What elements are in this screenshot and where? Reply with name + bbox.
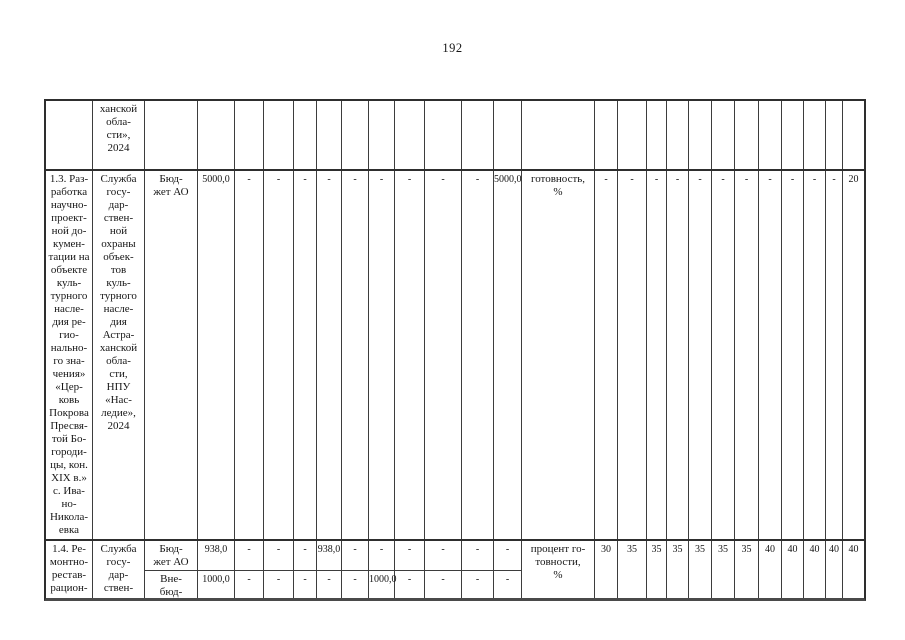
amount-cell bbox=[395, 101, 425, 169]
amount-cell bbox=[294, 101, 317, 169]
value-cell bbox=[843, 101, 864, 169]
value-cell: 40 bbox=[759, 541, 782, 598]
funding-source-cell: Бюд- жет АО bbox=[145, 541, 198, 570]
value-cell: - bbox=[804, 171, 826, 539]
value-cell: - bbox=[712, 171, 735, 539]
amount-cell: - bbox=[342, 171, 369, 539]
value-cell: 35 bbox=[647, 541, 667, 598]
amount-cell: - bbox=[369, 171, 395, 539]
executor-cell: Служба госу- дар- ствен- bbox=[93, 541, 145, 598]
value-cell bbox=[667, 101, 689, 169]
amount-cell: - bbox=[425, 171, 462, 539]
amount-cell: - bbox=[462, 571, 494, 598]
value-cell bbox=[782, 101, 804, 169]
amount-cell: - bbox=[395, 171, 425, 539]
amount-cell: 1000,0 bbox=[198, 571, 235, 598]
value-cell: 20 bbox=[843, 171, 864, 539]
funding-source-cell: Бюд- жет АО bbox=[145, 171, 198, 539]
indicator-cell bbox=[522, 101, 595, 169]
activity-cell: 1.4. Ре- монтно- рестав- рацион- bbox=[46, 541, 93, 598]
amount-cell: 5000,0 bbox=[494, 171, 522, 539]
amount-cell bbox=[462, 101, 494, 169]
executor-cell: Служба госу- дар- ствен- ной охраны объе… bbox=[93, 171, 145, 539]
amount-cell: - bbox=[395, 571, 425, 598]
amount-cell: - bbox=[317, 571, 342, 598]
indicator-cell: готовность, % bbox=[522, 171, 595, 539]
value-cell: - bbox=[595, 171, 618, 539]
amount-cell bbox=[369, 101, 395, 169]
amount-cell: - bbox=[462, 171, 494, 539]
value-cell bbox=[735, 101, 759, 169]
amount-cell bbox=[235, 101, 264, 169]
amount-cell: - bbox=[294, 571, 317, 598]
amount-cell: - bbox=[425, 541, 462, 570]
value-cell: 40 bbox=[782, 541, 804, 598]
value-cell: - bbox=[647, 171, 667, 539]
amount-cell: 5000,0 bbox=[198, 171, 235, 539]
amount-cell bbox=[264, 101, 294, 169]
amount-cell: - bbox=[294, 541, 317, 570]
amount-cell: - bbox=[264, 571, 294, 598]
amount-cell: - bbox=[317, 171, 342, 539]
amount-cell: - bbox=[264, 171, 294, 539]
value-cell: 35 bbox=[735, 541, 759, 598]
amount-cell bbox=[342, 101, 369, 169]
table-row-continuation: ханской обла- сти», 2024 bbox=[46, 101, 864, 171]
value-cell: - bbox=[826, 171, 843, 539]
value-cell bbox=[804, 101, 826, 169]
amount-cell bbox=[425, 101, 462, 169]
amount-cell: - bbox=[462, 541, 494, 570]
page-number: 192 bbox=[0, 41, 905, 56]
value-cell: 35 bbox=[618, 541, 647, 598]
value-cell: - bbox=[689, 171, 712, 539]
amount-cell bbox=[198, 101, 235, 169]
value-cell: - bbox=[759, 171, 782, 539]
amount-cell bbox=[494, 101, 522, 169]
value-cell bbox=[759, 101, 782, 169]
value-cell bbox=[618, 101, 647, 169]
value-cell: 40 bbox=[826, 541, 843, 598]
amount-cell: - bbox=[494, 571, 522, 598]
amount-cell: - bbox=[235, 571, 264, 598]
value-cell bbox=[826, 101, 843, 169]
amount-cell: 1000,0 bbox=[369, 571, 395, 598]
amount-cell: - bbox=[294, 171, 317, 539]
amount-cell: - bbox=[425, 571, 462, 598]
amount-cell: - bbox=[235, 171, 264, 539]
activity-cell: 1.3. Раз- работка научно- проект- ной до… bbox=[46, 171, 93, 539]
amount-cell: - bbox=[369, 541, 395, 570]
value-cell bbox=[689, 101, 712, 169]
activity-cell bbox=[46, 101, 93, 169]
amount-cell: - bbox=[235, 541, 264, 570]
amount-cell: - bbox=[395, 541, 425, 570]
value-cell: - bbox=[618, 171, 647, 539]
amount-cell: 938,0 bbox=[317, 541, 342, 570]
table-row-1-4: 1.4. Ре- монтно- рестав- рацион- Служба … bbox=[46, 541, 864, 598]
value-cell: 40 bbox=[804, 541, 826, 598]
value-cell: - bbox=[735, 171, 759, 539]
value-cell bbox=[595, 101, 618, 169]
value-cell: 40 bbox=[843, 541, 864, 598]
table-row-1-3: 1.3. Раз- работка научно- проект- ной до… bbox=[46, 171, 864, 541]
funding-source-cell: Вне- бюд- bbox=[145, 571, 198, 598]
funding-source-cell bbox=[145, 101, 198, 169]
funding-subrows: Бюд- жет АО 938,0---938,0------ Вне- бюд… bbox=[145, 541, 522, 598]
subrow-budget-ao: Бюд- жет АО 938,0---938,0------ bbox=[145, 541, 522, 571]
value-cell: 35 bbox=[689, 541, 712, 598]
amount-cell bbox=[317, 101, 342, 169]
value-cell: - bbox=[667, 171, 689, 539]
subrow-extrabudget: Вне- бюд- 1000,0-----1000,0---- bbox=[145, 571, 522, 598]
document-page: 192 ханской обла- сти», 2024 1.3. Раз- р… bbox=[0, 0, 905, 640]
executor-cell: ханской обла- сти», 2024 bbox=[93, 101, 145, 169]
program-table: ханской обла- сти», 2024 1.3. Раз- работ… bbox=[44, 99, 866, 601]
value-cell: 35 bbox=[712, 541, 735, 598]
amount-cell: - bbox=[494, 541, 522, 570]
indicator-cell: процент го- товности, % bbox=[522, 541, 595, 598]
value-cell: 35 bbox=[667, 541, 689, 598]
amount-cell: - bbox=[342, 571, 369, 598]
value-cell bbox=[712, 101, 735, 169]
value-cell: - bbox=[782, 171, 804, 539]
amount-cell: - bbox=[342, 541, 369, 570]
amount-cell: 938,0 bbox=[198, 541, 235, 570]
value-cell: 30 bbox=[595, 541, 618, 598]
value-cell bbox=[647, 101, 667, 169]
amount-cell: - bbox=[264, 541, 294, 570]
